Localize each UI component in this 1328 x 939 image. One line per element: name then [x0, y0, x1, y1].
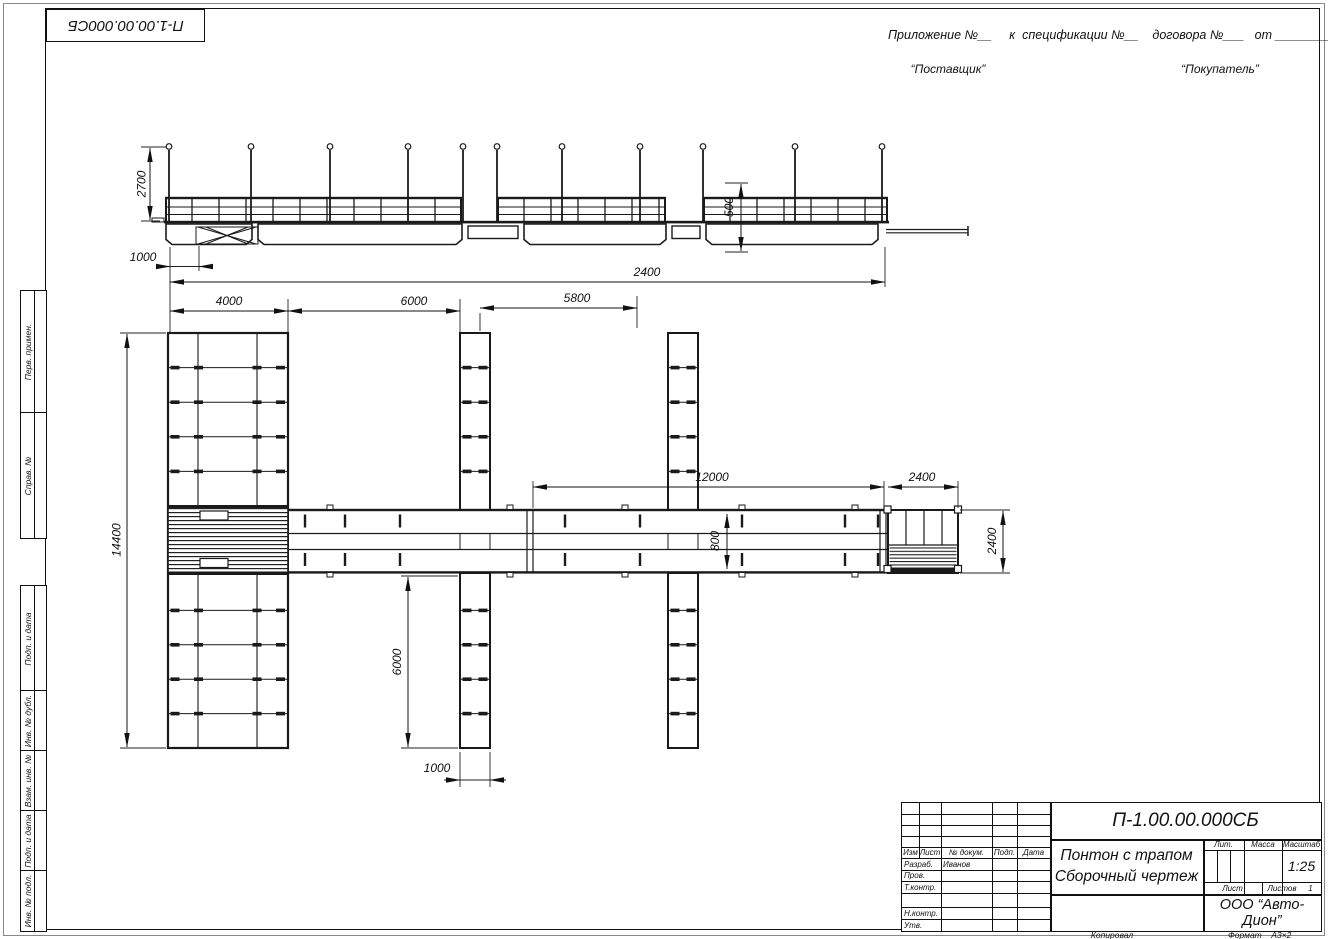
sheet-label: Лист — [1203, 882, 1262, 894]
col-date: Дата — [1017, 847, 1050, 858]
dim-label: 500 — [722, 197, 736, 217]
format-value: А3×2 — [1271, 930, 1291, 939]
scale-label: Масштаб — [1282, 839, 1321, 850]
dim-label: 2400 — [908, 470, 936, 484]
dim-label: 6000 — [401, 294, 428, 308]
title-block: Изм Лист № докум. Подп. Дата Разраб. Ива… — [901, 802, 1322, 932]
generated-linework — [152, 144, 968, 748]
drawing-sheet: П-1.00.00.000СБ Приложение №__ к специфи… — [0, 0, 1328, 939]
dim-label: 4000 — [216, 294, 243, 308]
lit-label: Лит. — [1203, 839, 1244, 850]
doc-number: П-1.00.00.000СБ — [1050, 803, 1321, 839]
col-sign: Подп. — [992, 847, 1017, 858]
sheets-label: Листов — [1262, 882, 1302, 894]
row-tkontr: Т.контр. — [904, 881, 946, 893]
row-utv: Утв. — [904, 919, 946, 931]
col-list: Лист — [919, 847, 941, 858]
dim-label: 2400 — [633, 265, 661, 279]
sheets-value: 1 — [1302, 882, 1319, 894]
assembly-drawing-canvas: 2700 1000 2400 500 4000 6000 5800 12000 … — [0, 0, 1328, 939]
dim-label: 5800 — [564, 291, 591, 305]
mass-label: Масса — [1244, 839, 1282, 850]
razrab-name: Иванов — [943, 858, 991, 870]
row-nkontr: Н.контр. — [904, 907, 946, 919]
dim-label: 800 — [708, 531, 722, 551]
dim-label: 1000 — [424, 761, 451, 775]
dim-label: 1000 — [130, 250, 157, 264]
col-doc: № докум. — [941, 847, 992, 858]
drawing-title: Понтон с трапом Сборочный чертеж — [1050, 839, 1203, 894]
scale-value: 1:25 — [1282, 850, 1321, 882]
dim-label: 14400 — [110, 523, 124, 557]
col-izm: Изм — [902, 847, 919, 858]
dim-label: 2700 — [135, 170, 149, 198]
dim-label: 2400 — [985, 527, 999, 555]
company-name: ООО “Авто-Дион” — [1203, 894, 1321, 931]
row-razrab: Разраб. — [904, 858, 944, 870]
copied-label: Копировал — [1047, 930, 1177, 939]
format-label: Формат А3×2 — [1228, 930, 1291, 939]
dim-label: 6000 — [390, 648, 404, 675]
row-prov: Пров. — [904, 870, 944, 881]
dim-label: 12000 — [695, 470, 729, 484]
